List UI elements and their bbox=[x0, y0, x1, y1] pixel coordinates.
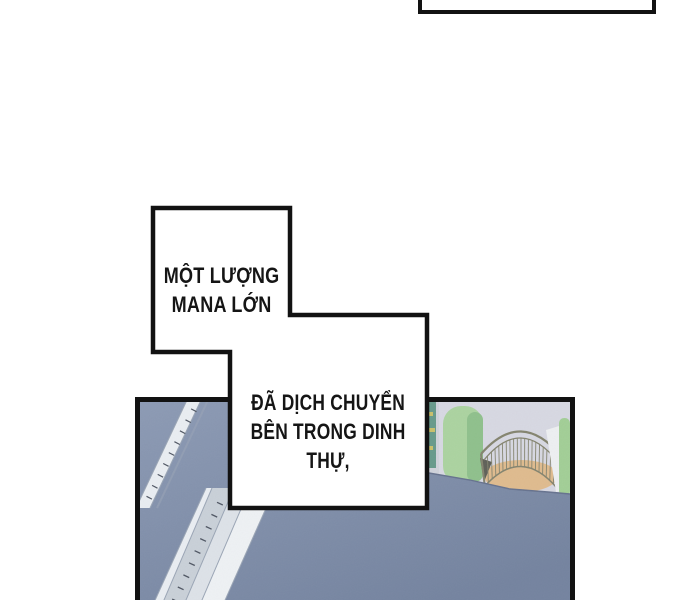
speech-bubble-top-partial bbox=[418, 0, 656, 14]
comic-page: MỘT LƯỢNG MANA LỚN ĐÃ DỊCH CHUYỂN BÊN TR… bbox=[0, 0, 700, 600]
speech-line: ĐÃ DỊCH CHUYỂN bbox=[251, 388, 406, 417]
speech-line: BÊN TRONG DINH bbox=[251, 417, 406, 446]
speech-line: THỰ, bbox=[251, 446, 406, 475]
speech-line: MỘT LƯỢNG bbox=[164, 261, 280, 290]
speech-bubble-2: ĐÃ DỊCH CHUYỂN BÊN TRONG DINH THỰ, bbox=[230, 315, 427, 508]
